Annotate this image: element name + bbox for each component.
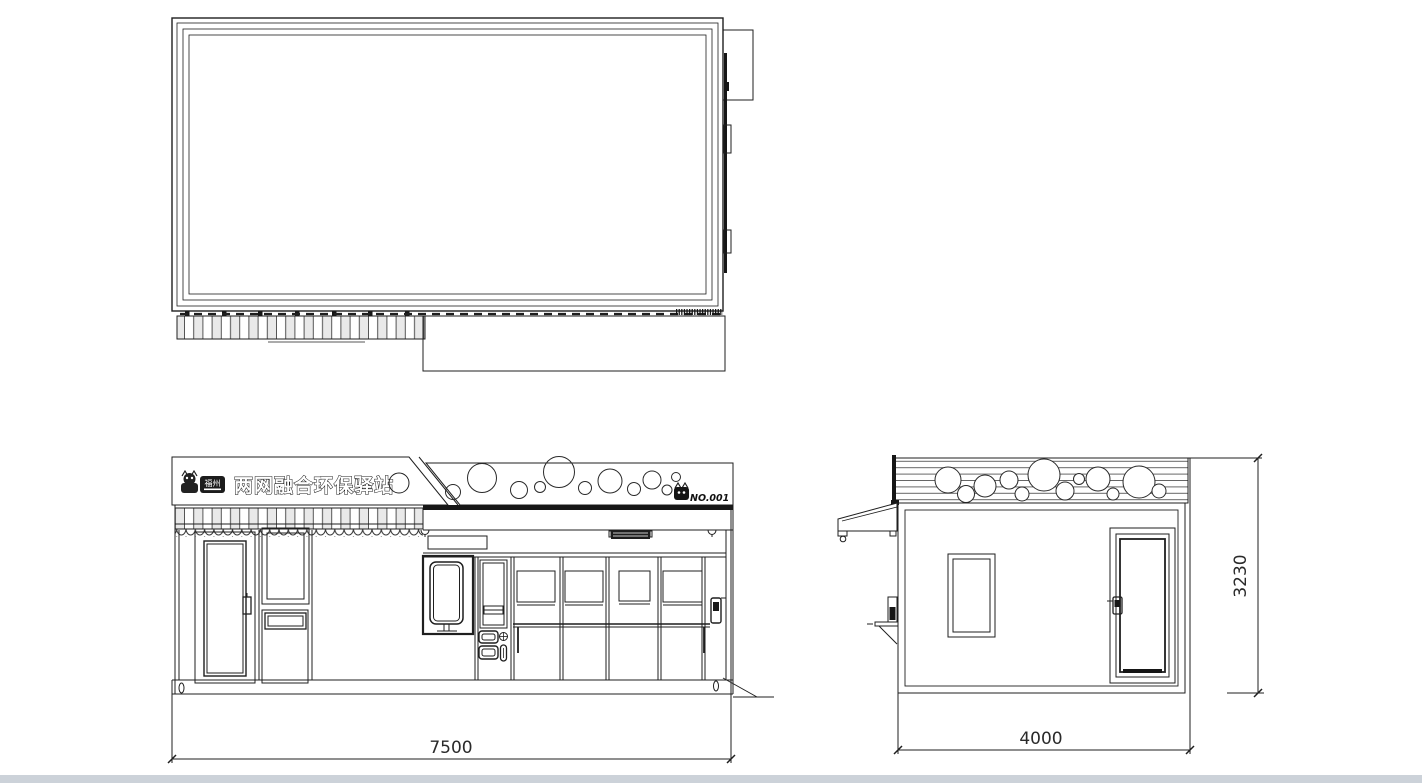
cad-drawing-canvas: 福州 两网融合环保驿站 bbox=[0, 0, 1422, 783]
bottom-bar bbox=[0, 775, 1422, 783]
coin-dial bbox=[500, 633, 508, 641]
wall-bracket bbox=[867, 597, 898, 644]
door-handle bbox=[243, 597, 251, 614]
side-wall bbox=[898, 503, 1185, 693]
kiosk-technical-drawing: 福州 两网融合环保驿站 bbox=[0, 0, 1422, 783]
front-elevation: 福州 两网融合环保驿站 bbox=[168, 457, 774, 764]
roof-eave-slats bbox=[177, 312, 425, 343]
dimension-height: 3230 bbox=[1185, 454, 1264, 697]
side-window bbox=[948, 554, 995, 637]
bench bbox=[513, 624, 710, 653]
side-door bbox=[1107, 528, 1175, 683]
entry-door bbox=[195, 532, 255, 683]
fascia bbox=[421, 505, 733, 549]
station-number-text: NO.001 bbox=[690, 493, 729, 504]
bay-dividers bbox=[475, 557, 705, 680]
mail-slot bbox=[265, 613, 306, 629]
dimension-front: 7500 bbox=[168, 738, 735, 763]
dimension-front-value: 7500 bbox=[429, 738, 472, 758]
window-bay bbox=[259, 528, 312, 683]
sign-title: 两网融合环保驿站 bbox=[234, 474, 394, 497]
side-roof-band bbox=[891, 455, 1188, 505]
roof-right-unit bbox=[723, 30, 753, 273]
plan-view bbox=[172, 18, 753, 371]
logo-badge-text: 福州 bbox=[205, 479, 221, 488]
vent bbox=[609, 530, 652, 539]
side-elevation: 4000 3230 bbox=[838, 454, 1264, 754]
awning-profile bbox=[838, 503, 897, 542]
roof-outline bbox=[172, 18, 723, 311]
poster-screen bbox=[423, 556, 473, 634]
fascia-signboard bbox=[428, 536, 487, 549]
dimension-side-value: 4000 bbox=[1019, 729, 1062, 749]
dimension-height-value: 3230 bbox=[1231, 554, 1251, 597]
sign-band: 福州 两网融合环保驿站 bbox=[172, 457, 733, 506]
vending-panel bbox=[479, 560, 508, 661]
